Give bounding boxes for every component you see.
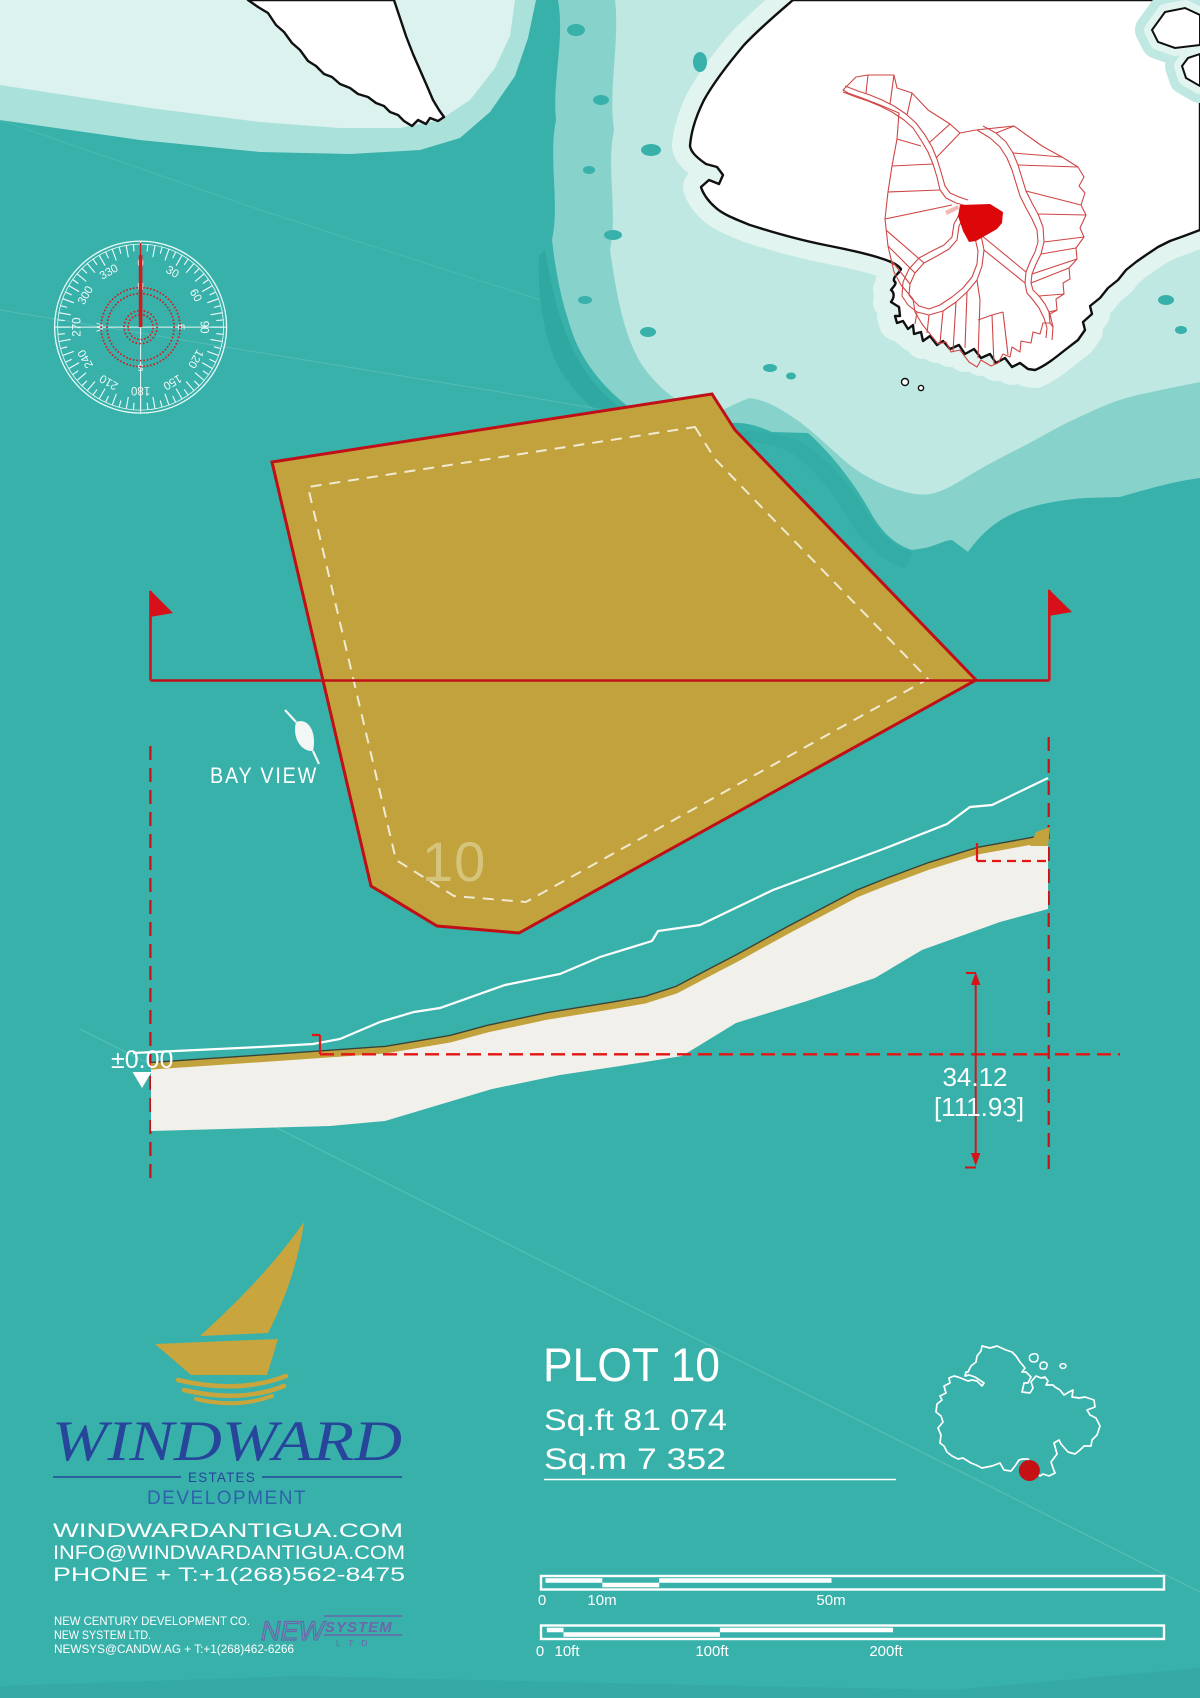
svg-text:NEWSYS@CANDW.AG + T:+1(268)462: NEWSYS@CANDW.AG + T:+1(268)462-6266 bbox=[54, 1642, 294, 1656]
svg-text:100ft: 100ft bbox=[695, 1643, 729, 1660]
svg-text:WINDWARDANTIGUA.COM: WINDWARDANTIGUA.COM bbox=[53, 1521, 403, 1542]
svg-text:270: 270 bbox=[72, 318, 84, 337]
svg-text:200ft: 200ft bbox=[869, 1643, 903, 1660]
svg-text:0: 0 bbox=[538, 1592, 546, 1609]
svg-text:0: 0 bbox=[536, 1643, 544, 1660]
svg-text:NEW SYSTEM LTD.: NEW SYSTEM LTD. bbox=[54, 1628, 151, 1642]
svg-text:PHONE + T:+1(268)562-8475: PHONE + T:+1(268)562-8475 bbox=[53, 1565, 405, 1586]
svg-text:NEW: NEW bbox=[261, 1616, 327, 1646]
svg-text:10m: 10m bbox=[587, 1592, 616, 1609]
svg-text:180: 180 bbox=[131, 384, 150, 396]
svg-text:10ft: 10ft bbox=[554, 1643, 580, 1660]
svg-text:INFO@WINDWARDANTIGUA.COM: INFO@WINDWARDANTIGUA.COM bbox=[53, 1543, 405, 1564]
svg-text:LTD: LTD bbox=[336, 1638, 375, 1648]
svg-text:90: 90 bbox=[198, 321, 210, 334]
svg-text:BAY VIEW: BAY VIEW bbox=[210, 763, 318, 788]
svg-text:10: 10 bbox=[422, 830, 486, 893]
svg-text:ESTATES: ESTATES bbox=[188, 1470, 256, 1485]
svg-text:34.12: 34.12 bbox=[942, 1062, 1007, 1092]
svg-text:NEW CENTURY DEVELOPMENT CO.: NEW CENTURY DEVELOPMENT CO. bbox=[54, 1614, 250, 1628]
svg-text:SYSTEM: SYSTEM bbox=[325, 1619, 393, 1636]
svg-text:PLOT 10: PLOT 10 bbox=[543, 1338, 720, 1391]
svg-text:Sq.m 7 352: Sq.m 7 352 bbox=[544, 1443, 726, 1476]
svg-text:[111.93]: [111.93] bbox=[934, 1092, 1024, 1122]
svg-text:Sq.ft 81 074: Sq.ft 81 074 bbox=[544, 1404, 727, 1437]
svg-text:DEVELOPMENT: DEVELOPMENT bbox=[147, 1488, 307, 1509]
svg-text:WINDWARD: WINDWARD bbox=[52, 1410, 402, 1473]
svg-text:±0.00: ±0.00 bbox=[111, 1046, 173, 1074]
svg-text:50m: 50m bbox=[816, 1592, 845, 1609]
